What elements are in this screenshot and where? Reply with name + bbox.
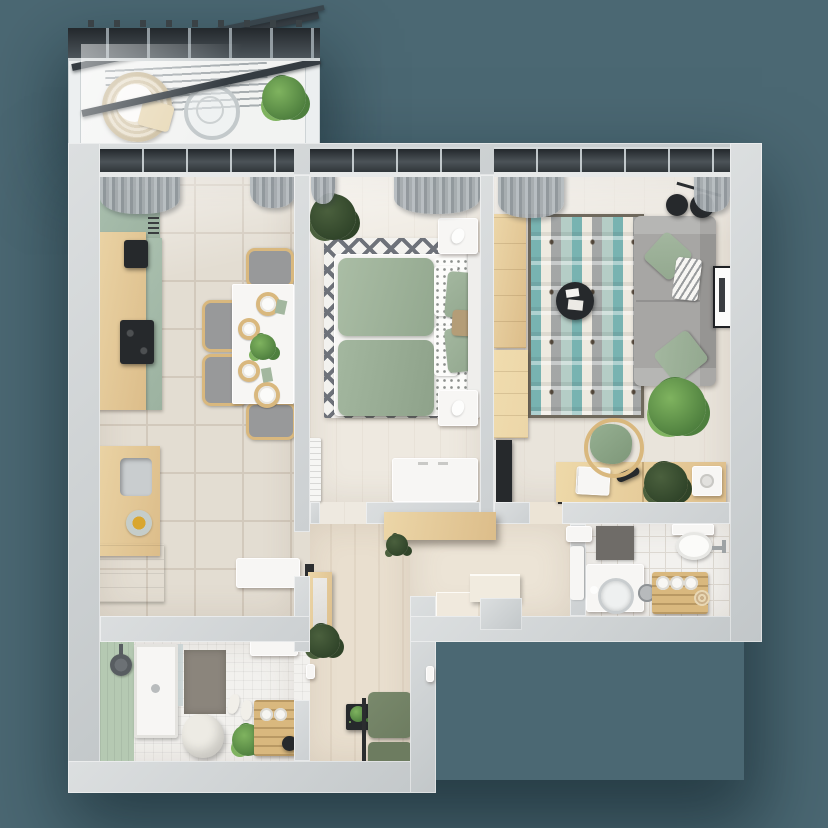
kitchen-bench — [236, 558, 300, 588]
wall-left — [68, 143, 100, 793]
coffee-machine — [124, 240, 148, 268]
wall-right — [730, 143, 762, 642]
wall-art-image — [719, 278, 725, 312]
kitchen-curtain-left — [100, 172, 180, 214]
partition-bedroom-bottom-a — [310, 502, 320, 524]
living-plant — [648, 378, 706, 436]
balcony-roof-spikes — [88, 20, 304, 27]
desk-plant — [644, 462, 688, 504]
shower-room-shelf — [250, 640, 298, 656]
wall-bottom-right — [410, 616, 762, 642]
balcony-glass-sheen — [81, 44, 305, 145]
coffee-table-paper-2 — [568, 299, 584, 311]
floor-plan-scene — [0, 0, 828, 828]
place-setting-4 — [254, 382, 280, 408]
hall-wall-hook — [306, 664, 315, 679]
living-cabinet — [494, 350, 528, 438]
shower-mixer-vertical — [722, 540, 726, 553]
entry-door-handle — [426, 666, 434, 682]
shower-drain — [151, 684, 160, 693]
cooktop — [120, 320, 154, 364]
table-centerpiece-plant — [250, 334, 276, 360]
duvet-north-half — [338, 258, 434, 336]
shower-glass-screen — [178, 644, 183, 706]
crate-towel-1 — [260, 708, 273, 721]
dresser-handle-2 — [438, 462, 448, 465]
hall-plant — [306, 624, 340, 658]
printer-box-dial — [700, 474, 714, 488]
dining-chair-top — [246, 248, 294, 288]
round-basin — [598, 578, 634, 614]
bedroom-door-opening — [318, 502, 366, 524]
floor-lamp-disc-1 — [666, 194, 688, 216]
kitchen-window — [100, 147, 294, 177]
kitchen-cabinet-grille — [148, 214, 159, 234]
sofa-pillow-zigzag — [672, 257, 703, 302]
wardrobe — [494, 214, 526, 348]
rolled-towel-2 — [670, 576, 684, 590]
entry-door — [480, 598, 522, 630]
rolled-towel-1 — [656, 576, 670, 590]
duvet-south-half — [338, 340, 434, 416]
laundry-bag — [182, 714, 224, 758]
living-curtain-left — [498, 172, 564, 218]
basin-faucet — [590, 586, 598, 594]
bathroom-dark-panel — [596, 526, 634, 560]
console-plant — [386, 534, 408, 556]
shower-head — [110, 654, 132, 676]
bedroom-curtain-right — [394, 172, 480, 214]
partition-living-bottom-b — [562, 502, 730, 524]
partition-kitchen-bedroom — [294, 175, 310, 532]
wall-bottom-left — [68, 761, 436, 793]
kitchen-sink — [120, 458, 152, 496]
rolled-towel-3 — [684, 576, 698, 590]
partition-living-bottom-a — [494, 502, 530, 524]
bathroom-door-leaf — [570, 546, 584, 600]
shower-mat — [184, 650, 226, 714]
crate-towel-2 — [274, 708, 287, 721]
living-window — [494, 147, 730, 177]
vestibule-wall-cabinet — [566, 526, 592, 542]
toilet-bowl — [676, 532, 712, 560]
kitchen-curtain-right — [250, 172, 296, 208]
tv-panel — [494, 440, 512, 502]
partition-kitchen-shower — [100, 616, 310, 642]
bedroom-dresser — [392, 458, 478, 502]
armchair-back — [368, 692, 412, 738]
living-curtain-right — [694, 172, 730, 212]
living-door-opening — [530, 502, 562, 524]
sofa-armrest-top — [634, 216, 716, 234]
bedroom-window — [310, 147, 480, 177]
dining-chair-bottom — [246, 402, 296, 440]
place-setting-3 — [238, 360, 260, 382]
kitchen-base-cabinet — [92, 544, 164, 602]
rolled-towel-tan — [694, 590, 710, 606]
partition-hall-shower — [294, 700, 310, 761]
armchair-frame — [362, 698, 366, 766]
partition-bedroom-living — [480, 175, 494, 524]
fruit-bowl — [126, 510, 152, 536]
dresser-handle-1 — [418, 462, 428, 465]
